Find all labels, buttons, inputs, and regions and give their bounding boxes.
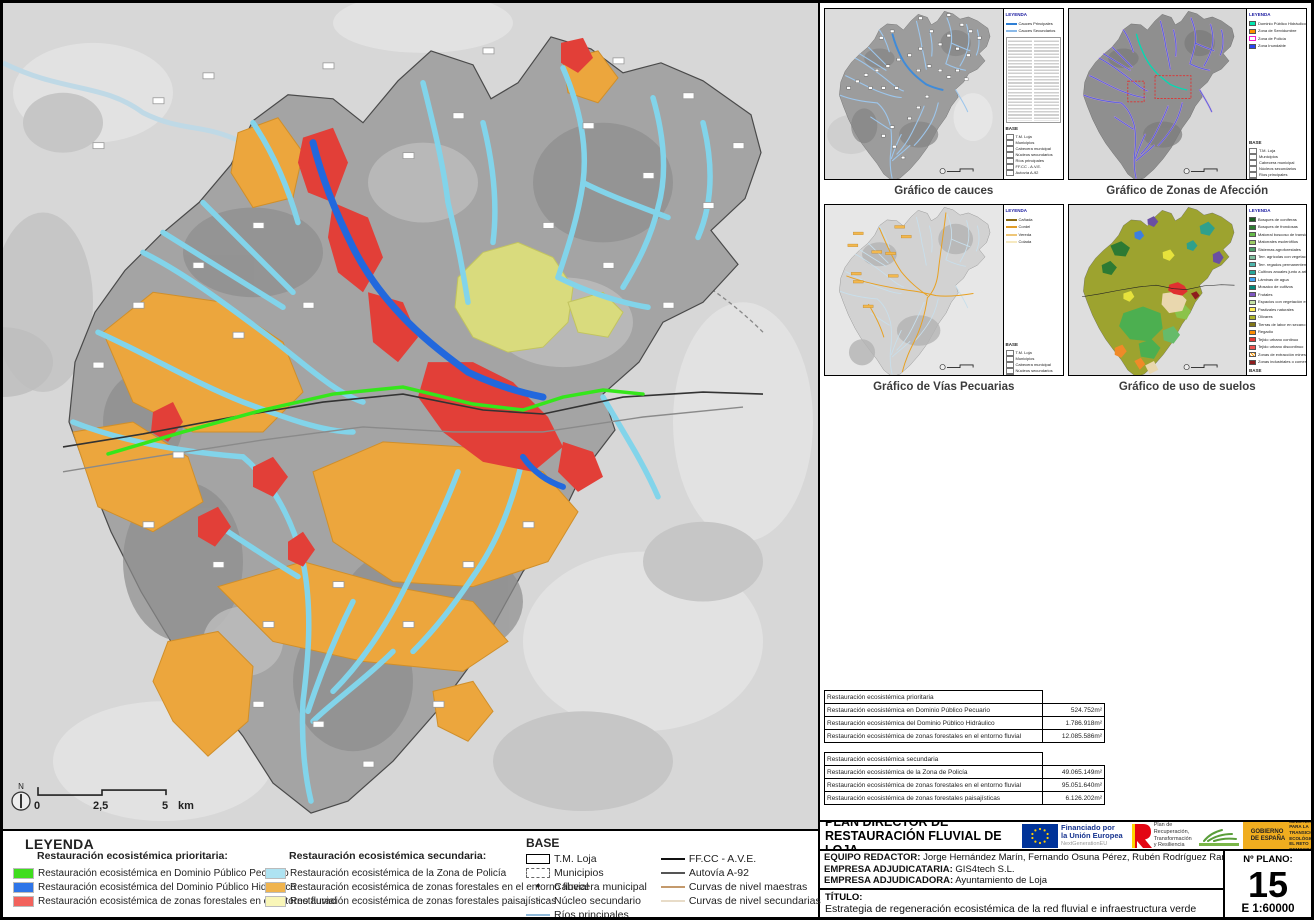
mini-legend-entry: Vereda [1006, 232, 1061, 238]
base-legend-icon [526, 914, 550, 916]
table-row: Restauración ecosistémica de zonas fores… [825, 730, 1105, 743]
base-legend-label: T.M. Loja [554, 853, 597, 865]
mini-legend-entry: Zona de Servidumbre [1249, 28, 1304, 34]
mini-legend-symbol [1249, 292, 1256, 297]
legend-item: Restauración ecosistémica en Dominio Púb… [13, 867, 263, 880]
prtr-logo: Plan de Recuperación, Transformación y R… [1127, 822, 1195, 849]
mini-legend-entry: Cauces Principales [1006, 21, 1061, 27]
mini-legend-symbol [1249, 232, 1256, 237]
mini-legend-symbol [1249, 322, 1256, 327]
titulo-text: Estrategia de regeneración ecosistémica … [825, 903, 1218, 919]
svg-text:5: 5 [162, 800, 168, 812]
mini-legend-symbol [1249, 307, 1256, 312]
mini-legend-symbol [1006, 226, 1017, 228]
mini-legend-symbol [1006, 23, 1017, 25]
base-legend-icon [661, 858, 685, 860]
minimap-caption: Gráfico de uso de suelos [1068, 376, 1308, 400]
mini-legend-symbol [1249, 352, 1256, 357]
legend-color-chip [13, 882, 34, 893]
mini-legend-symbol [1249, 337, 1256, 342]
pecuarias-map-canvas [825, 205, 1003, 375]
legend-item-label: Restauración ecosistémica de la Zona de … [290, 868, 506, 879]
mini-legend-entry: Cultivos anuales junto a arbolado [1249, 269, 1304, 275]
mini-legend-entry: Zona Inundable [1249, 43, 1304, 49]
base-legend-label: Curvas de nivel maestras [689, 881, 807, 893]
plan-number: 15 [1248, 867, 1288, 903]
base-legend-icon [661, 900, 685, 902]
mini-legend-entry: Colada [1006, 239, 1061, 245]
mini-legend-symbol [1249, 345, 1256, 350]
base-legend-label: Municipios [554, 867, 604, 879]
minimap-caption: Gráfico de Zonas de Afección [1068, 180, 1308, 204]
legend-secondary-subtitle: Restauración ecosistémica secundaria: [289, 850, 565, 862]
cauces-map-canvas [825, 9, 1003, 179]
main-map-canvas: N 0 2,5 5 km [3, 3, 818, 829]
mini-legend-symbol [1006, 219, 1017, 221]
minimap-caption: Gráfico de cauces [824, 180, 1064, 204]
mini-legend-entry: Espacios con vegetación escasa [1249, 299, 1304, 305]
mini-legend-symbol [1006, 241, 1017, 243]
minimap-caption: Gráfico de Vías Pecuarias [824, 376, 1064, 400]
table-row: Restauración ecosistémica en Dominio Púb… [825, 704, 1105, 717]
mini-legend-entry: Terr. regados permanentemente [1249, 262, 1304, 268]
afeccion-legend: LEYENDA Dominio Público Hidráulico [1246, 9, 1306, 179]
mini-legend-symbol [1249, 240, 1256, 245]
priority-areas-table: Restauración ecosistémica prioritaria Re… [824, 690, 1105, 743]
minimap-suelos: LEYENDA Bosques de coníferas [1068, 204, 1308, 400]
mini-legend-entry: Cañada [1006, 217, 1061, 223]
right-panel: LEYENDA Cauces Principales [820, 3, 1311, 917]
base-legend-item: Núcleo secundario [526, 894, 647, 908]
mini-base-item: Autovía A-92 [1006, 170, 1061, 176]
main-map-section: N 0 2,5 5 km LEYENDA Restauración ecosis… [3, 3, 820, 917]
mini-legend-symbol [1249, 36, 1256, 41]
base-legend-title: BASE [526, 836, 821, 850]
mini-legend-entry: Regadío [1249, 329, 1304, 335]
minimap-cauces: LEYENDA Cauces Principales [824, 8, 1064, 204]
mini-legend-entry: Terr. agrícolas con vegetación natural [1249, 254, 1304, 260]
base-legend-label: Curvas de nivel secundarias [689, 895, 821, 907]
credits: EQUIPO REDACTOR: Jorge Hernández Marín, … [824, 852, 1223, 887]
mini-legend-entry: Zonas industriales o comerciales [1249, 359, 1304, 365]
mini-legend-symbol [1249, 270, 1256, 275]
legend-color-chip [13, 868, 34, 879]
base-legend-icon [526, 868, 550, 878]
mini-legend-entry: Matorral boscoso de transición [1249, 232, 1304, 238]
base-legend-item: T.M. Loja [526, 852, 647, 866]
base-legend-icon [526, 895, 550, 907]
base-legend-label: Cabecera municipal [554, 881, 647, 893]
mini-legend-entry: Tejido urbano continuo [1249, 337, 1304, 343]
table-row: Restauración ecosistémica del Dominio Pú… [825, 717, 1105, 730]
legend-item-label: Restauración ecosistémica en Dominio Púb… [38, 868, 289, 879]
table-header: Restauración ecosistémica prioritaria [825, 691, 1043, 704]
svg-text:0: 0 [34, 800, 40, 812]
mini-legend-entry: Olivares [1249, 314, 1304, 320]
base-legend-icon [526, 854, 550, 864]
base-legend-label: Autovía A-92 [689, 867, 749, 879]
mini-legend-symbol [1249, 225, 1256, 230]
legend-item: Restauración ecosistémica del Dominio Pú… [13, 881, 263, 894]
eu-flag-icon [1022, 824, 1058, 848]
afeccion-map-canvas [1069, 9, 1247, 179]
base-legend-item: Curvas de nivel secundarias [661, 894, 821, 908]
legend-item-label: Restauración ecosistémica de zonas fores… [290, 896, 556, 907]
mini-legend-symbol [1249, 262, 1256, 267]
base-legend-label: Núcleo secundario [554, 895, 641, 907]
cauces-name-table [1006, 37, 1061, 123]
mini-legend-entry: Cauces Secundarios [1006, 28, 1061, 34]
area-tables: Restauración ecosistémica prioritaria Re… [820, 690, 1311, 820]
base-legend-item: Curvas de nivel maestras [661, 880, 821, 894]
mini-legend-symbol [1249, 21, 1256, 26]
minimap-grid: LEYENDA Cauces Principales [820, 3, 1311, 400]
base-legend-label: FF.CC - A.V.E. [689, 853, 756, 865]
table-row: Restauración ecosistémica de zonas fores… [825, 779, 1105, 792]
title-block: PLAN DIRECTOR DE RESTAURACIÓN FLUVIAL DE… [820, 820, 1311, 917]
secondary-areas-table: Restauración ecosistémica secundaria Res… [824, 752, 1105, 805]
plan-sheet: N 0 2,5 5 km LEYENDA Restauración ecosis… [0, 0, 1314, 920]
mini-legend-title: LEYENDA [1006, 12, 1061, 19]
base-legend: BASE T.M. Loja Municipios [526, 836, 821, 920]
mini-legend-entry: Zona de Policía [1249, 36, 1304, 42]
mini-legend-symbol [1006, 30, 1017, 32]
suelos-map-canvas [1069, 205, 1247, 375]
legend-color-chip [265, 882, 286, 893]
cauces-legend: LEYENDA Cauces Principales [1003, 9, 1063, 179]
main-map: N 0 2,5 5 km [3, 3, 818, 831]
base-legend-label: Ríos principales [554, 909, 629, 920]
mini-legend-entry: Zonas de extracción minera [1249, 352, 1304, 358]
base-legend-item: Cabecera municipal [526, 880, 647, 894]
legend-secondary-column: Restauración ecosistémica secundaria: Re… [265, 850, 565, 909]
mini-legend-symbol [1249, 315, 1256, 320]
legend-priority-subtitle: Restauración ecosistémica prioritaria: [37, 850, 263, 862]
legend-item-label: Restauración ecosistémica del Dominio Pú… [38, 882, 296, 893]
mini-legend-symbol [1249, 285, 1256, 290]
project-title: PLAN DIRECTOR DE RESTAURACIÓN FLUVIAL DE… [820, 822, 1018, 849]
mini-legend-entry: Bosques de frondosas [1249, 224, 1304, 230]
mini-base-item: FF.CC - A.V.E. [1249, 178, 1304, 180]
titulo-label: TÍTULO: [825, 892, 1218, 903]
eu-funding-logo: Financiado por la Unión Europea NextGene… [1018, 822, 1127, 849]
mini-legend-symbol [1249, 217, 1256, 222]
table-row: Restauración ecosistémica de la Zona de … [825, 766, 1105, 779]
minimap-afeccion: LEYENDA Dominio Público Hidráulico [1068, 8, 1308, 204]
plan-scale: E 1:60000 [1241, 903, 1294, 918]
table-row: Restauración ecosistémica de zonas fores… [825, 792, 1105, 805]
pecuarias-legend: LEYENDA Cañada Cord [1003, 205, 1063, 375]
mini-legend-entry: Sistemas agroforestales [1249, 247, 1304, 253]
base-legend-icon [661, 872, 685, 874]
mini-legend-symbol [1006, 234, 1017, 236]
legend-color-chip [265, 868, 286, 879]
legend-priority-column: Restauración ecosistémica prioritaria: R… [13, 850, 263, 909]
mini-legend-symbol [1249, 277, 1256, 282]
mini-legend-entry: Láminas de agua [1249, 277, 1304, 283]
grass-icon [1200, 826, 1238, 842]
mini-legend-entry: Matorrales esclerófilos [1249, 239, 1304, 245]
mini-legend-entry: Frutales [1249, 292, 1304, 298]
base-legend-item: Municipios [526, 866, 647, 880]
mini-legend-entry: Dominio Público Hidráulico [1249, 21, 1304, 27]
prtr-r-icon [1130, 823, 1152, 848]
mini-legend-entry: Mosaico de cultivos [1249, 284, 1304, 290]
ministerio-text: MINISTERIO PARA LA TRANSICIÓN ECOLÓGICA … [1289, 822, 1311, 849]
mini-legend-symbol [1249, 330, 1256, 335]
legend-color-chip [13, 896, 34, 907]
mini-legend-entry: Pastizales naturales [1249, 307, 1304, 313]
funding-logos: Financiado por la Unión Europea NextGene… [1018, 822, 1311, 849]
legend-item: Restauración ecosistémica de zonas fores… [265, 881, 565, 894]
base-legend-item: Autovía A-92 [661, 866, 821, 880]
legend-color-chip [265, 896, 286, 907]
mini-legend-symbol [1249, 255, 1256, 260]
minimap-pecuarias: LEYENDA Cañada Cord [824, 204, 1064, 400]
legend-item: Restauración ecosistémica de zonas fores… [265, 895, 565, 908]
base-legend-item: Ríos principales [526, 908, 647, 920]
mini-base-item: Ríos principales [1006, 374, 1061, 376]
mini-legend-symbol [1249, 29, 1256, 34]
mini-legend-entry: Tejido urbano discontinuo [1249, 344, 1304, 350]
svg-text:N: N [18, 782, 24, 791]
table-header: Restauración ecosistémica secundaria [825, 753, 1043, 766]
mini-legend-symbol [1249, 247, 1256, 252]
fundacion-biodiversidad-logo [1195, 822, 1243, 849]
mini-legend-symbol [1249, 300, 1256, 305]
main-legend: LEYENDA Restauración ecosistémica priori… [3, 831, 818, 917]
legend-item: Restauración ecosistémica de la Zona de … [265, 867, 565, 880]
suelos-legend: LEYENDA Bosques de coníferas [1246, 205, 1306, 375]
mini-legend-entry: Cordel [1006, 224, 1061, 230]
svg-text:km: km [178, 800, 194, 812]
legend-item: Restauración ecosistémica de zonas fores… [13, 895, 263, 908]
mini-legend-entry: Bosques de coníferas [1249, 217, 1304, 223]
base-legend-icon [661, 886, 685, 888]
base-legend-item: FF.CC - A.V.E. [661, 852, 821, 866]
gobierno-espana-logo: GOBIERNO DE ESPAÑA MINISTERIO PARA LA TR… [1243, 822, 1311, 849]
plan-number-cell: Nº PLANO: 15 E 1:60000 [1223, 851, 1311, 920]
mini-legend-symbol [1249, 360, 1256, 365]
svg-text:2,5: 2,5 [93, 800, 108, 812]
mini-legend-entry: Tierras de labor en secano [1249, 322, 1304, 328]
mini-legend-symbol [1249, 44, 1256, 49]
